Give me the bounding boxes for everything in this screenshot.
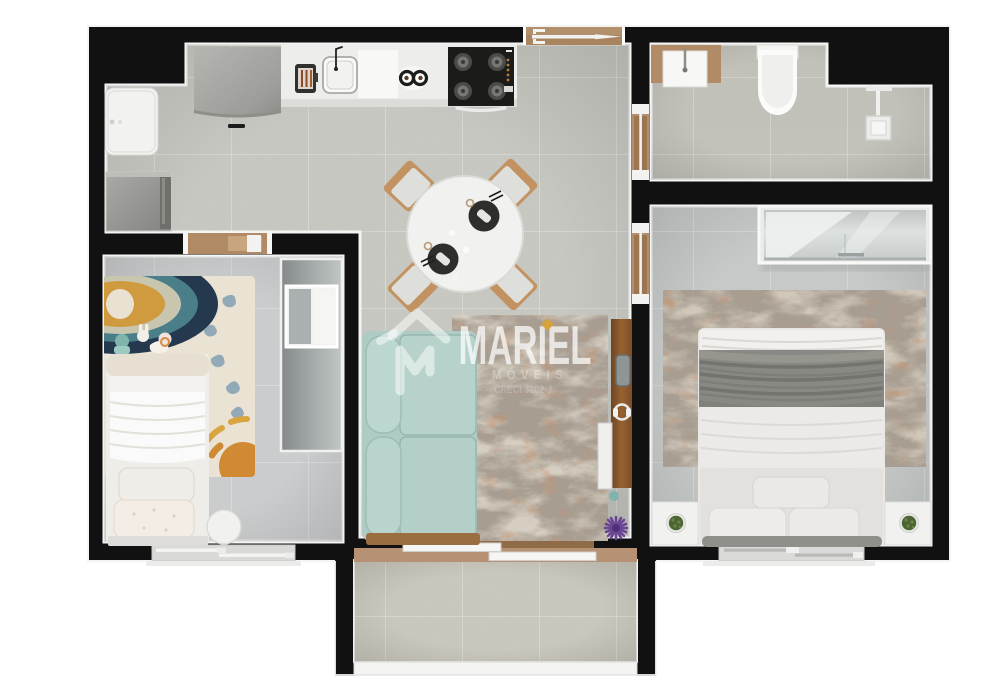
- svg-text:CRECI 3202-J: CRECI 3202-J: [494, 384, 552, 396]
- svg-text:MÓVEIS: MÓVEIS: [492, 367, 568, 382]
